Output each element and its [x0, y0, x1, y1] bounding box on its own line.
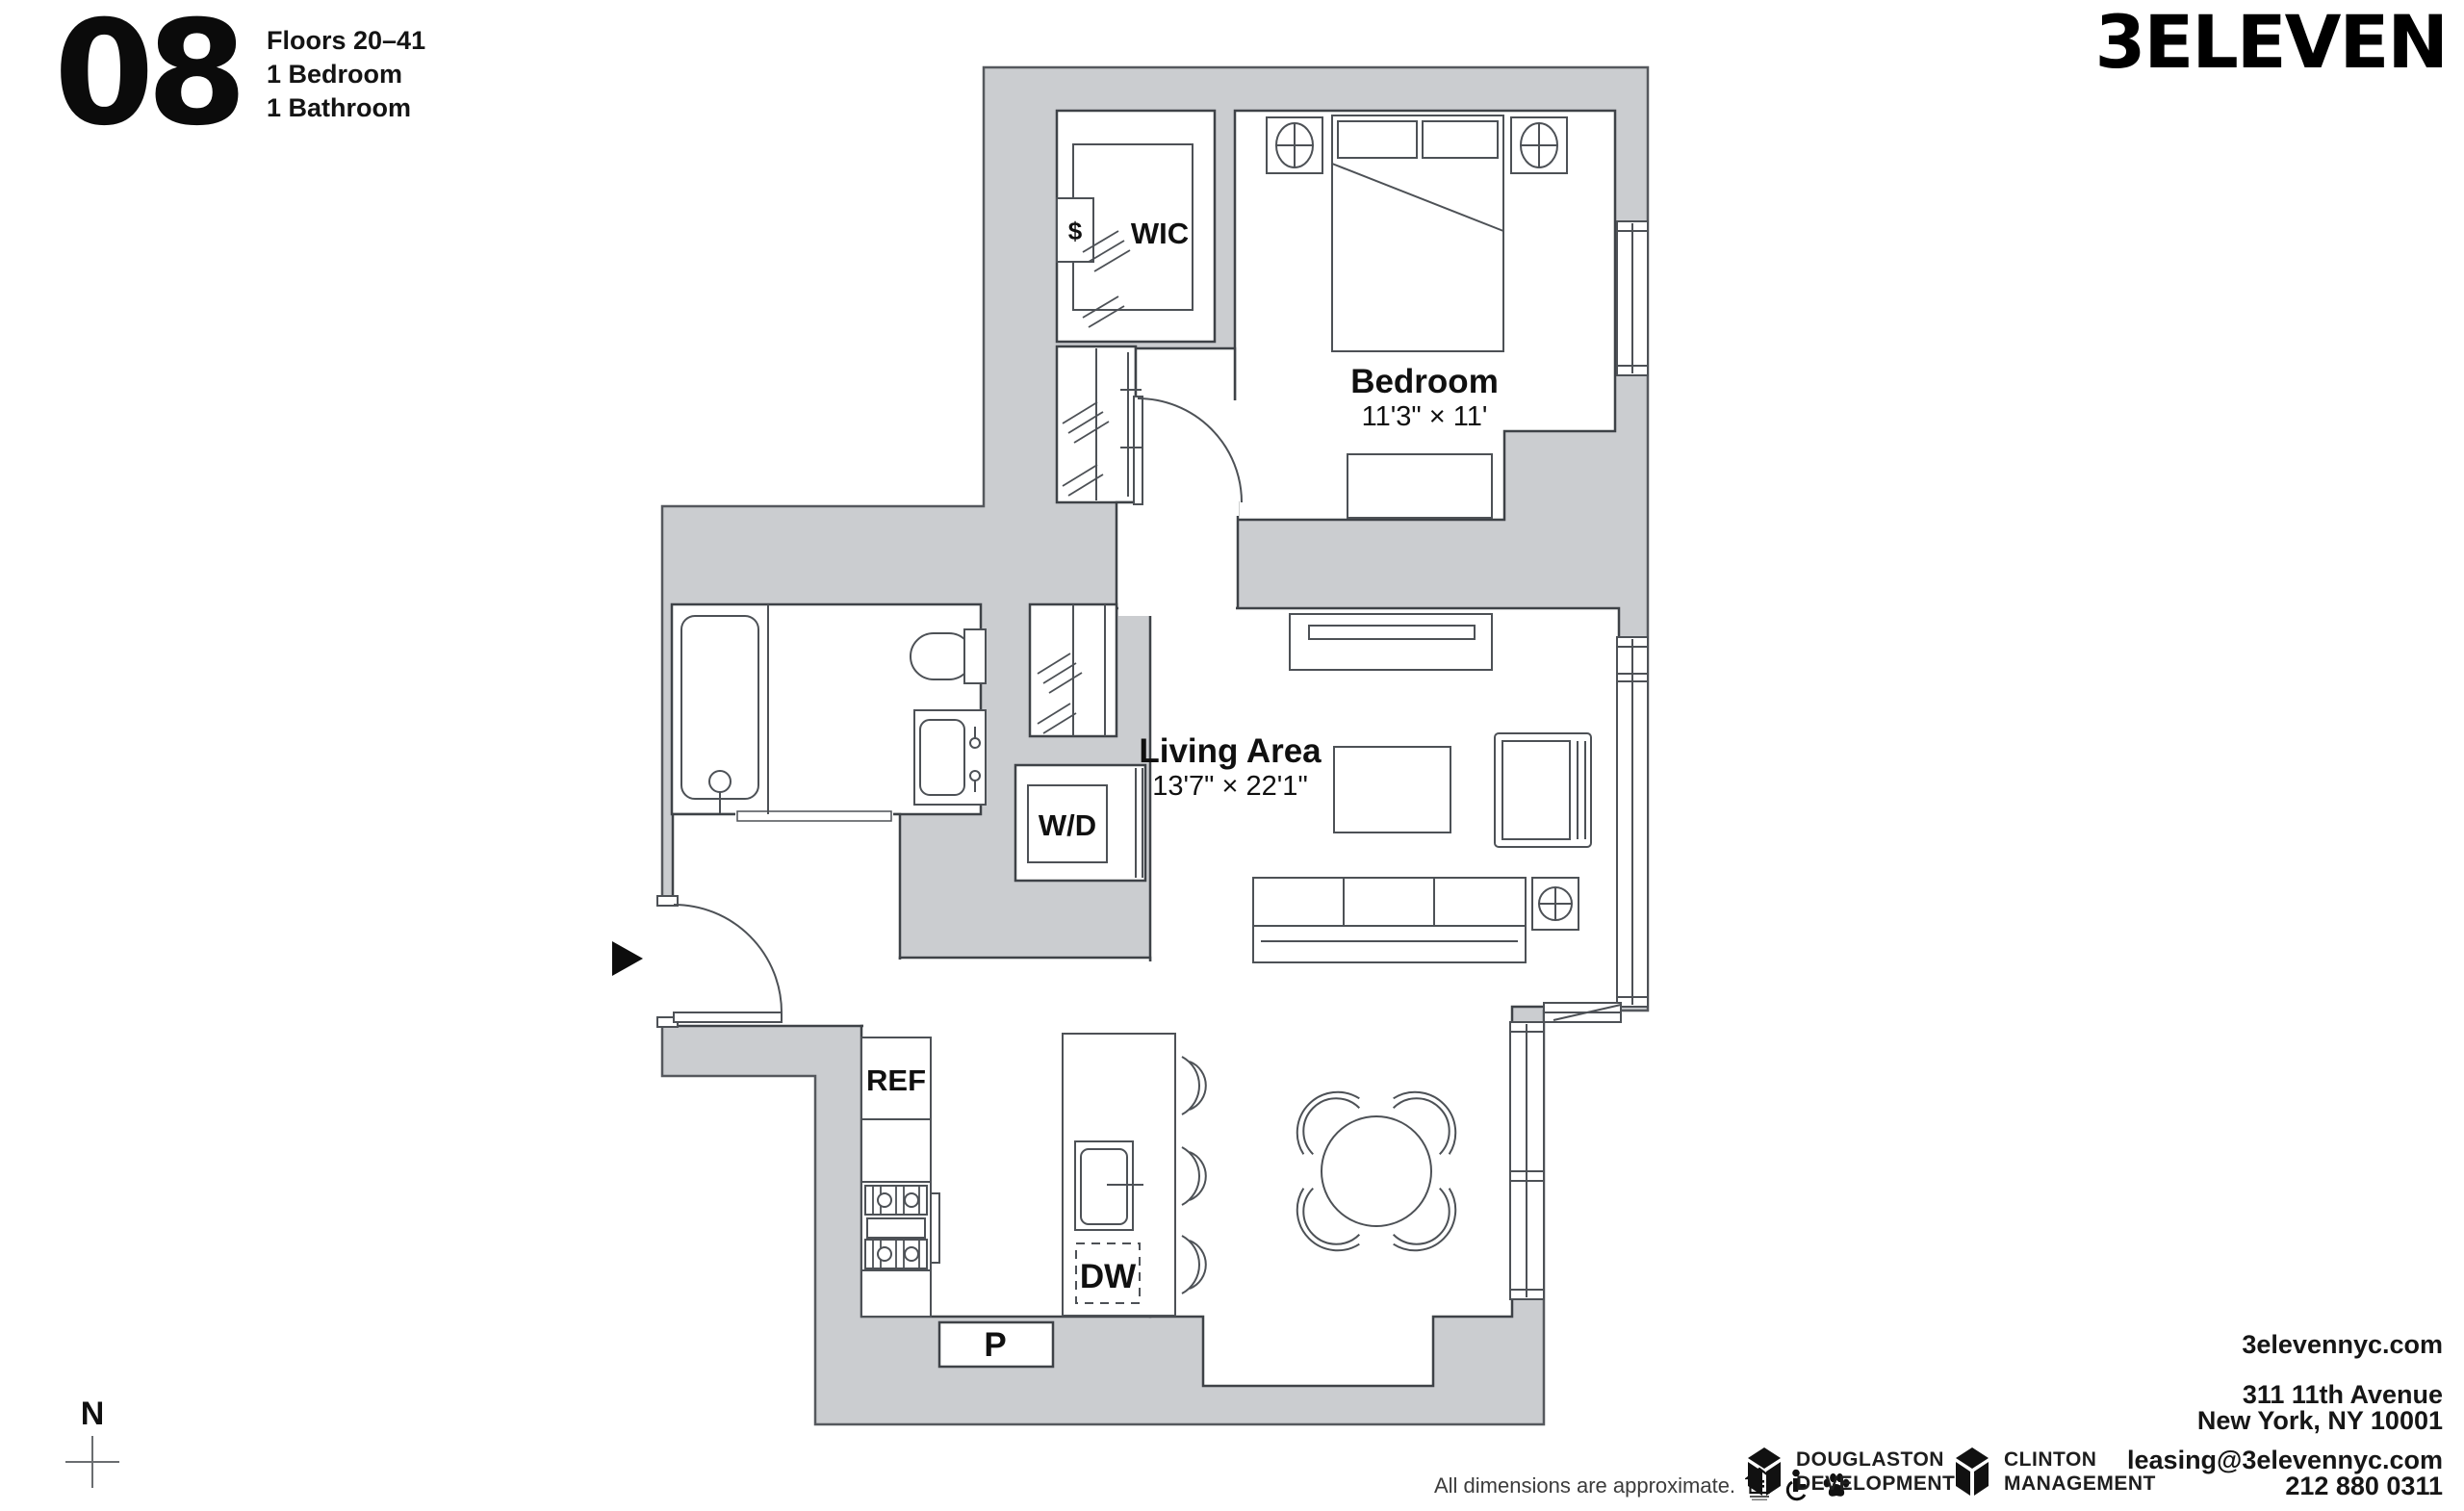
developer-logo: DOUGLASTON DEVELOPMENT — [1744, 1446, 1955, 1498]
douglaston-cube-icon — [1744, 1446, 1784, 1498]
compass-north: N — [64, 1396, 141, 1501]
bathroom-threshold — [737, 811, 891, 821]
vanity-sink — [914, 710, 986, 805]
contact-block: 3elevennyc.com 311 11th Avenue New York,… — [2127, 1332, 2443, 1499]
clinton-cube-icon — [1952, 1446, 1992, 1498]
bedroom-label: Bedroom — [1350, 363, 1499, 400]
floor-plan: WIC $ Bedroom 11'3" × 11' Living Area 13… — [0, 0, 2464, 1511]
dw-label: DW — [1080, 1258, 1136, 1295]
entry-hall — [673, 814, 900, 1026]
living-dims: 13'7" × 22'1" — [1152, 771, 1307, 802]
living-label: Living Area — [1139, 732, 1322, 770]
address-line2: New York, NY 10001 — [2127, 1408, 2443, 1434]
address-line1: 311 11th Avenue — [2127, 1382, 2443, 1408]
bedroom-dims: 11'3" × 11' — [1362, 401, 1488, 432]
floorplan-sheet: 08 Floors 20–41 1 Bedroom 1 Bathroom 3EL… — [0, 0, 2464, 1511]
disclaimer-text: All dimensions are approximate. — [1434, 1473, 1735, 1498]
ref-label: REF — [866, 1063, 926, 1097]
sofa — [1253, 878, 1526, 962]
entry-arrow-icon — [612, 941, 643, 976]
coffee-table — [1334, 747, 1450, 832]
toilet — [911, 629, 986, 683]
website: 3elevennyc.com — [2127, 1332, 2443, 1358]
wic-label: WIC — [1131, 217, 1189, 250]
nightstand-right — [1511, 117, 1567, 173]
email: leasing@3elevennyc.com — [2127, 1447, 2443, 1473]
bedroom-entry-nook — [1136, 348, 1235, 502]
safe-label: $ — [1068, 217, 1083, 245]
bedroom-window — [1617, 221, 1648, 375]
management-logo: CLINTON MANAGEMENT — [1952, 1446, 2156, 1498]
corridor — [1116, 502, 1238, 608]
dining-table — [1322, 1116, 1431, 1226]
developer-line1: DOUGLASTON — [1796, 1447, 1955, 1472]
compass-n-label: N — [81, 1396, 105, 1432]
bed — [1332, 115, 1503, 351]
armchair — [1495, 733, 1591, 847]
side-table-lamp — [1532, 878, 1578, 930]
pantry-label: P — [984, 1326, 1006, 1364]
developer-line2: DEVELOPMENT — [1796, 1472, 1955, 1496]
tub-faucet — [709, 771, 731, 792]
dresser — [1347, 454, 1492, 518]
wd-label: W/D — [1039, 808, 1096, 842]
dining-window — [1510, 1003, 1621, 1299]
nightstand-left — [1267, 117, 1322, 173]
room-living-dining — [1150, 608, 1619, 1386]
living-window — [1617, 637, 1648, 1007]
phone: 212 880 0311 — [2127, 1473, 2443, 1499]
tv-console — [1290, 614, 1492, 670]
passage — [900, 958, 1150, 1026]
